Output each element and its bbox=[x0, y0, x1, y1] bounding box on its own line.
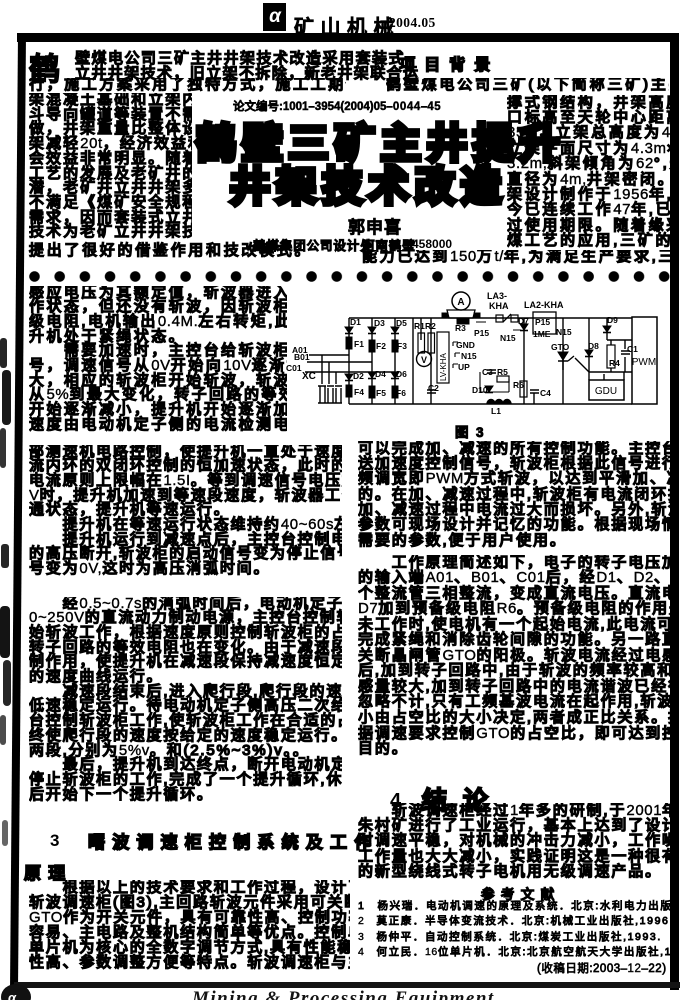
svg-text:N15: N15 bbox=[500, 333, 516, 343]
svg-text:LA2-KHA: LA2-KHA bbox=[524, 300, 564, 310]
svg-text:LV-KHA: LV-KHA bbox=[439, 352, 448, 381]
svg-text:GND: GND bbox=[456, 340, 475, 350]
svg-text:LA3-: LA3- bbox=[487, 291, 507, 301]
svg-text:1ME: 1ME bbox=[533, 329, 551, 339]
svg-text:C2: C2 bbox=[428, 383, 439, 393]
svg-text:N15: N15 bbox=[556, 327, 572, 337]
svg-text:F2: F2 bbox=[376, 341, 386, 351]
svg-text:D1: D1 bbox=[350, 317, 361, 327]
svg-text:V: V bbox=[421, 355, 427, 365]
svg-text:C01: C01 bbox=[286, 363, 302, 373]
svg-text:F6: F6 bbox=[396, 388, 406, 398]
svg-text:R2: R2 bbox=[425, 321, 436, 331]
svg-text:F4: F4 bbox=[354, 387, 364, 397]
svg-text:D6: D6 bbox=[396, 369, 407, 379]
svg-text:R3: R3 bbox=[455, 323, 466, 333]
svg-text:GDU: GDU bbox=[595, 386, 617, 397]
svg-text:L1: L1 bbox=[491, 406, 501, 416]
svg-text:R1: R1 bbox=[414, 321, 425, 331]
svg-text:R5: R5 bbox=[497, 367, 508, 377]
svg-text:PWM: PWM bbox=[632, 357, 656, 368]
svg-text:D8: D8 bbox=[588, 341, 599, 351]
svg-text:GTO: GTO bbox=[551, 342, 570, 352]
svg-text:F3: F3 bbox=[397, 341, 407, 351]
svg-text:D7: D7 bbox=[518, 316, 529, 326]
svg-text:D10: D10 bbox=[472, 385, 488, 395]
svg-text:C3: C3 bbox=[482, 367, 493, 377]
svg-text:UP: UP bbox=[458, 362, 470, 372]
svg-text:R6: R6 bbox=[513, 380, 524, 390]
svg-text:C1: C1 bbox=[627, 344, 638, 354]
svg-text:F1: F1 bbox=[354, 339, 364, 349]
svg-text:P15: P15 bbox=[474, 328, 489, 338]
svg-text:P15: P15 bbox=[535, 317, 550, 327]
svg-text:R4: R4 bbox=[609, 358, 620, 368]
svg-text:D9: D9 bbox=[607, 315, 618, 325]
svg-text:A: A bbox=[457, 297, 464, 308]
svg-text:XC: XC bbox=[302, 371, 316, 382]
svg-text:F5: F5 bbox=[376, 388, 386, 398]
svg-text:D4: D4 bbox=[375, 369, 386, 379]
svg-text:D5: D5 bbox=[396, 318, 407, 328]
svg-text:B01: B01 bbox=[294, 352, 310, 362]
svg-text:KHA: KHA bbox=[489, 301, 509, 311]
svg-text:N15: N15 bbox=[461, 351, 477, 361]
svg-text:D2: D2 bbox=[353, 371, 364, 381]
svg-text:D3: D3 bbox=[374, 318, 385, 328]
svg-text:C4: C4 bbox=[540, 388, 551, 398]
